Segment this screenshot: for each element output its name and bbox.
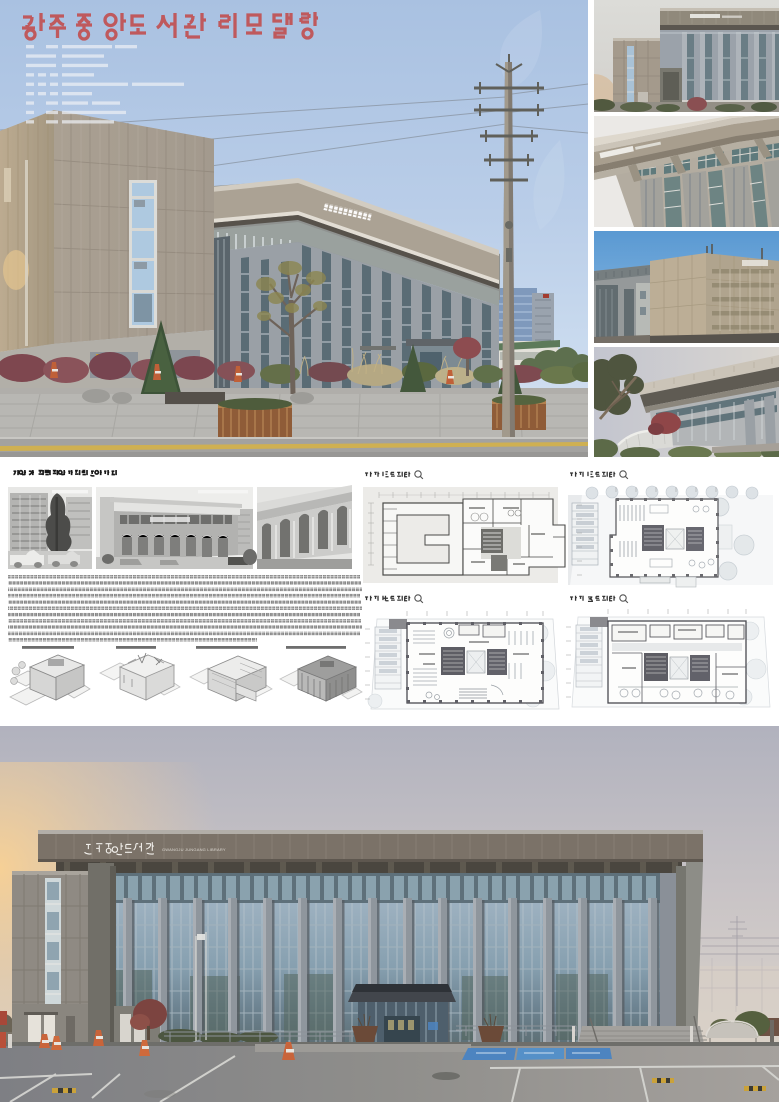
svg-text:GWANGJU JUNGANG LIBRARY: GWANGJU JUNGANG LIBRARY: [162, 847, 226, 852]
